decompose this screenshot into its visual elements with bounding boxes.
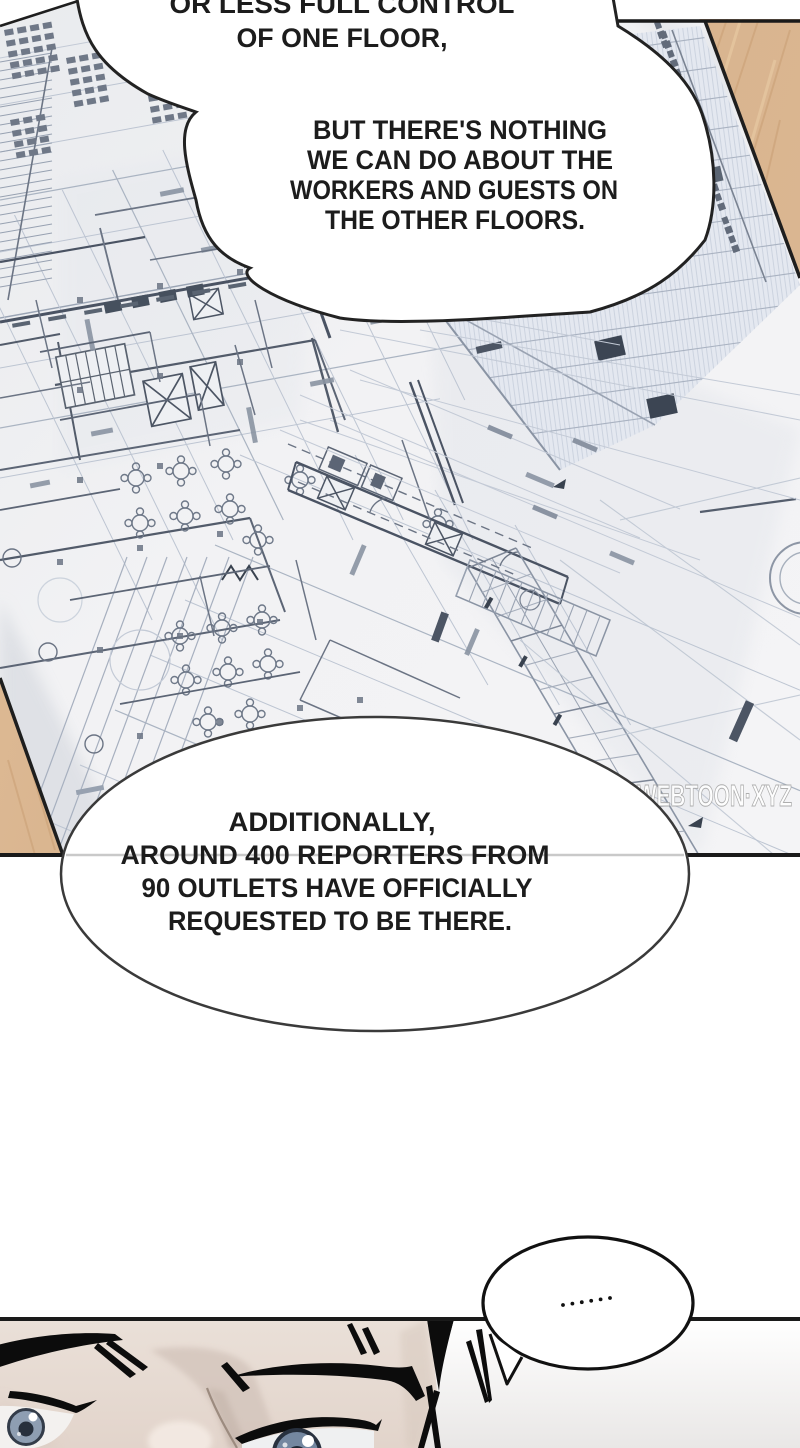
svg-text:WORKERS AND GUESTS ON: WORKERS AND GUESTS ON (290, 175, 618, 205)
svg-text:90 OUTLETS HAVE OFFICIALLY: 90 OUTLETS HAVE OFFICIALLY (142, 873, 533, 903)
svg-text:WE CAN DO ABOUT THE: WE CAN DO ABOUT THE (307, 145, 613, 175)
svg-text:OR LESS FULL CONTROL: OR LESS FULL CONTROL (170, 0, 515, 19)
svg-text:ADDITIONALLY,: ADDITIONALLY, (229, 807, 436, 837)
svg-text:REQUESTED TO BE THERE.: REQUESTED TO BE THERE. (168, 906, 512, 936)
svg-text:AROUND 400 REPORTERS FROM: AROUND 400 REPORTERS FROM (121, 840, 550, 870)
svg-text:BUT THERE'S NOTHING: BUT THERE'S NOTHING (313, 115, 607, 145)
svg-text:OF ONE FLOOR,: OF ONE FLOOR, (237, 23, 448, 53)
svg-text:THE OTHER FLOORS.: THE OTHER FLOORS. (325, 205, 585, 235)
